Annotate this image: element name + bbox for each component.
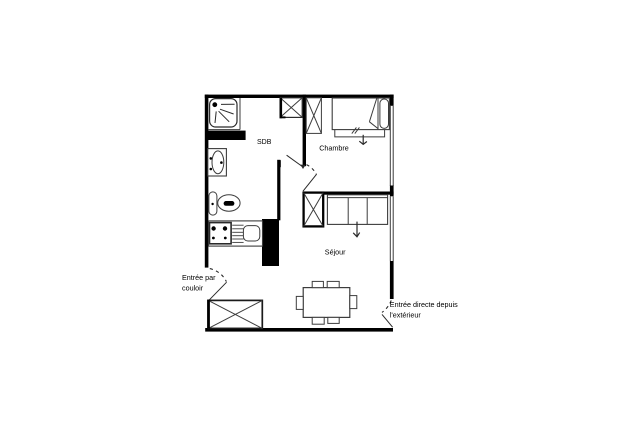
svg-text:l'extérieur: l'extérieur (390, 310, 422, 319)
svg-text:Séjour: Séjour (325, 248, 346, 257)
svg-text:Entrée directe depuis: Entrée directe depuis (390, 300, 458, 309)
svg-text:Entrée par: Entrée par (182, 273, 216, 282)
svg-text:SDB: SDB (257, 139, 272, 146)
svg-text:Chambre: Chambre (319, 143, 349, 152)
svg-text:couloir: couloir (182, 284, 204, 293)
